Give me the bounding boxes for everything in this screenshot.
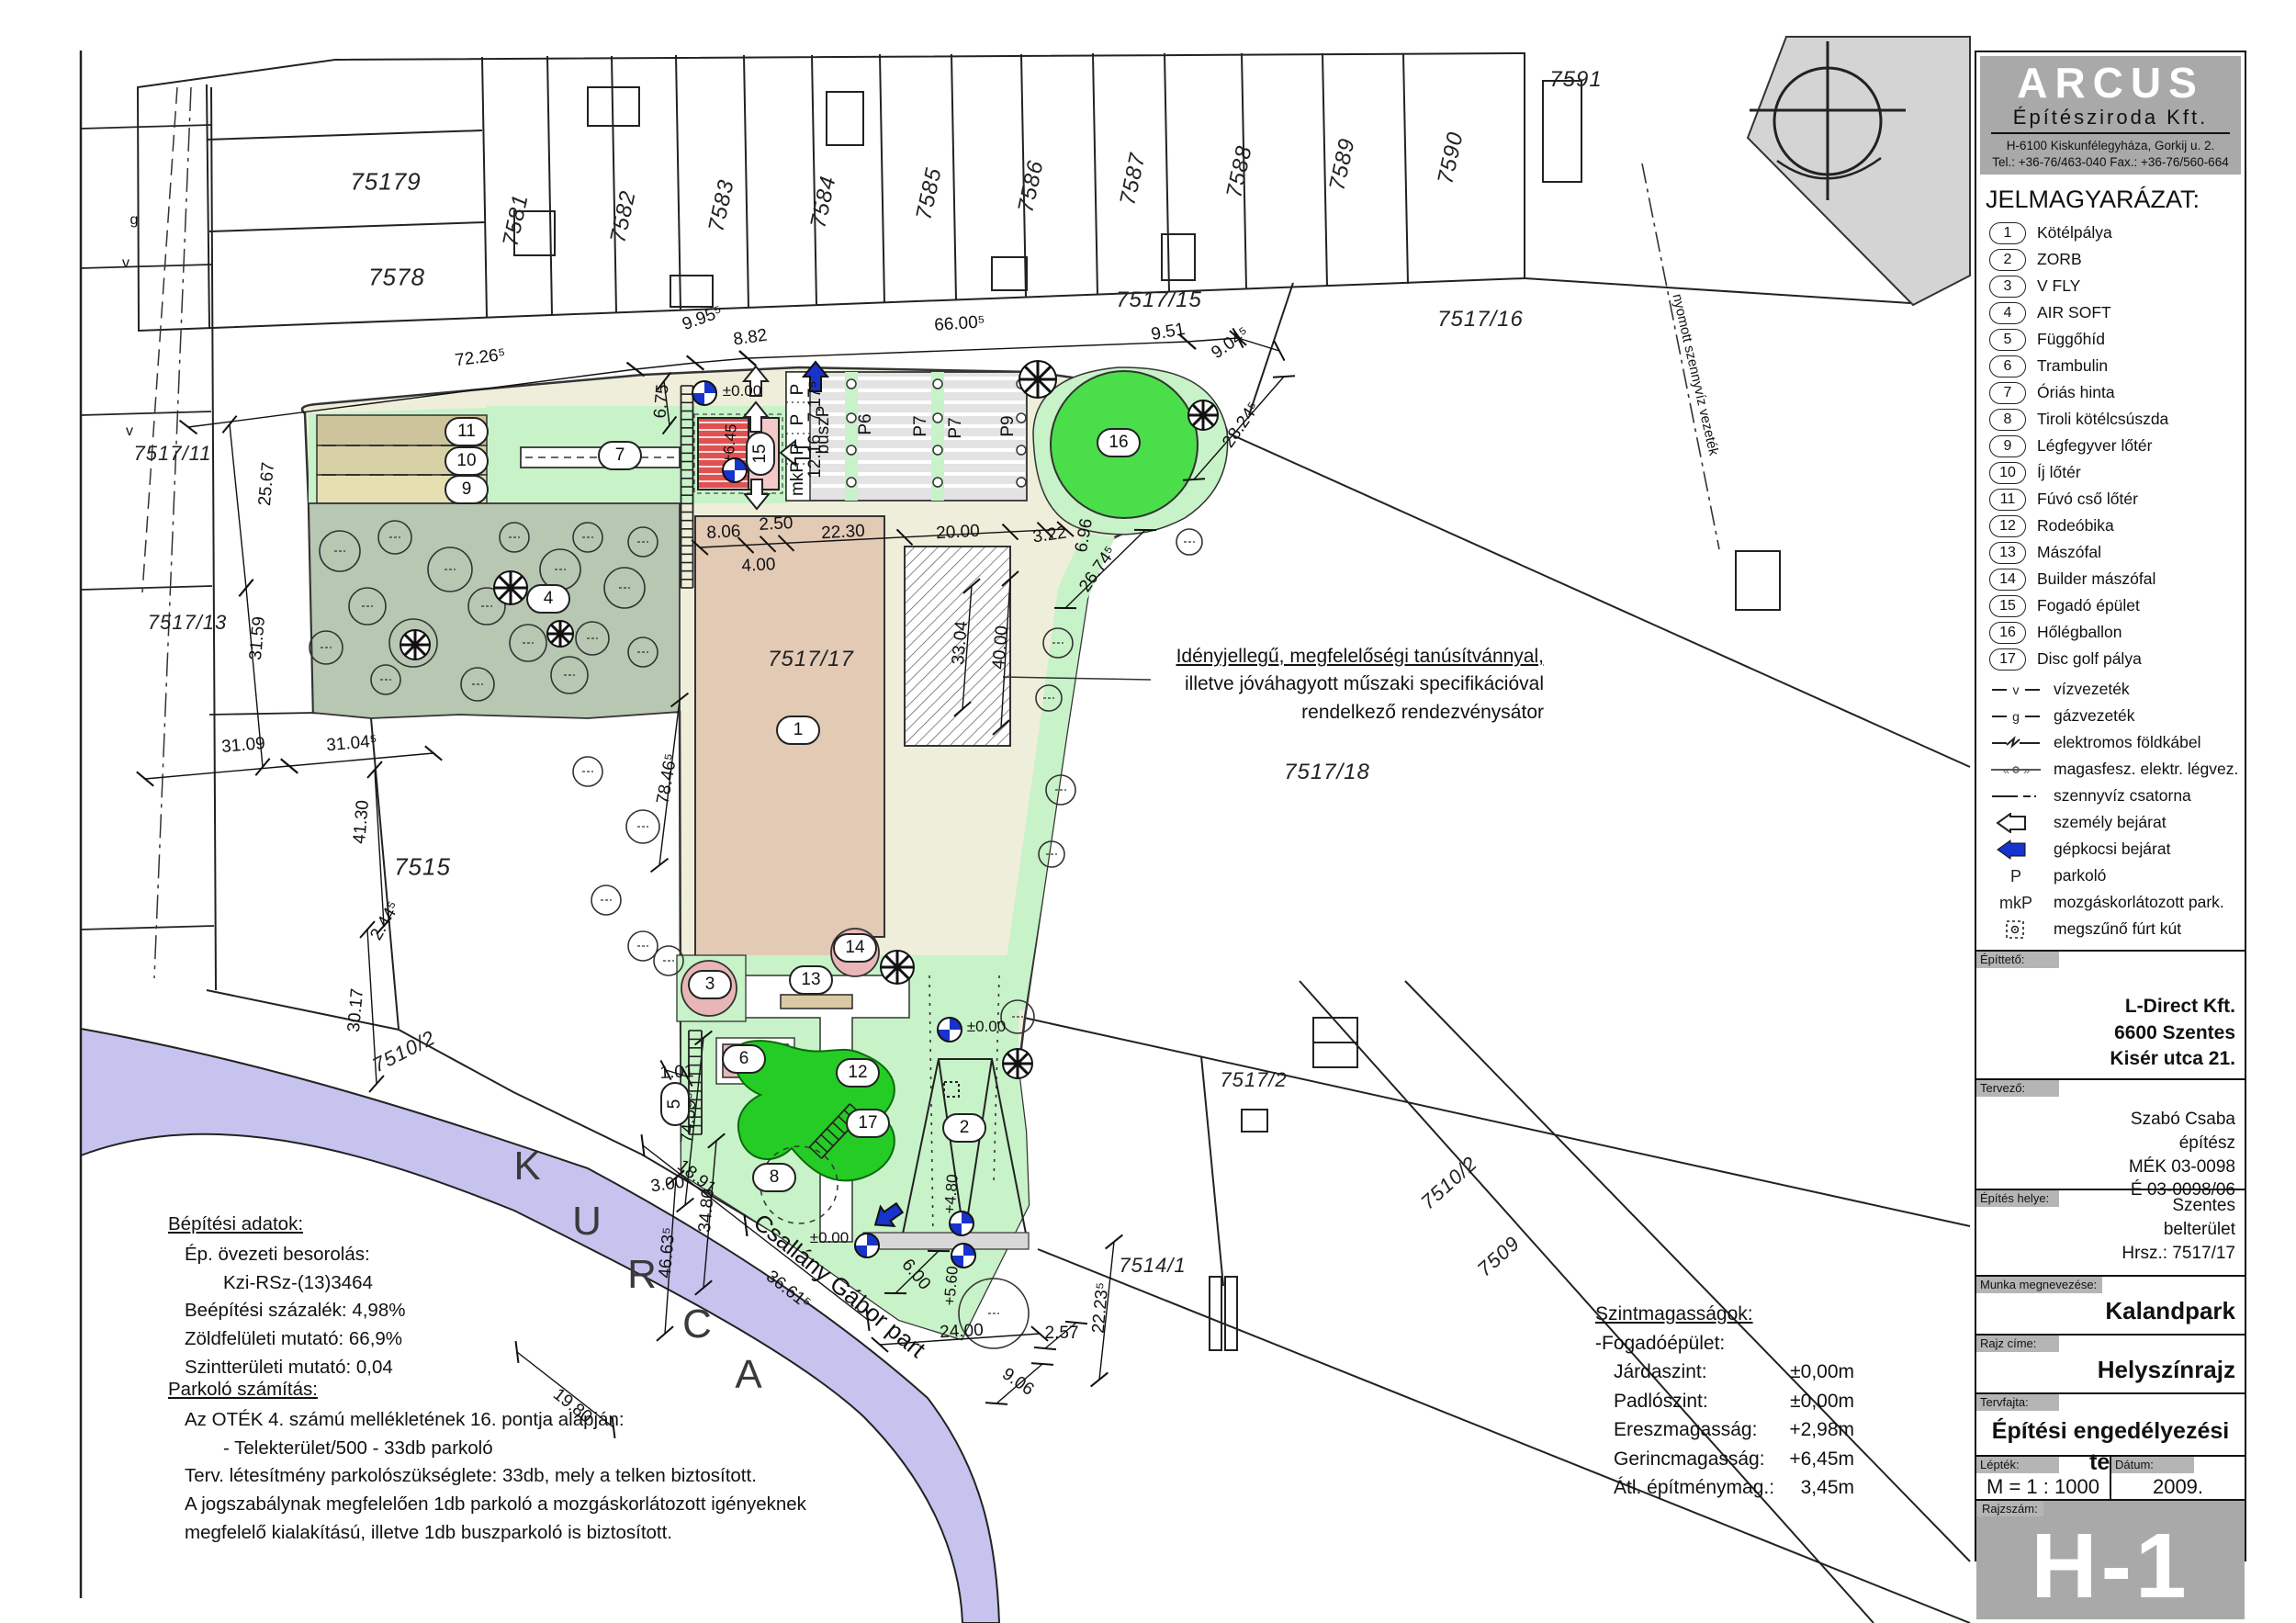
tent-note-line1: Idényjellegű, megfelelőségi tanúsítvánny… <box>1151 643 1544 671</box>
field-label: Tervfajta: <box>1976 1394 2059 1411</box>
legend-symbol-well: megszűnő fúrt kút <box>1976 916 2245 942</box>
letterline-symbol: v <box>1989 680 2043 700</box>
parcel-label: 7514/1 <box>1119 1254 1186 1278</box>
dimension-label: 20.00 <box>936 522 981 544</box>
legend-item-label: Óriás hinta <box>2037 383 2115 402</box>
legend-item-number: 1 <box>1989 222 2026 244</box>
levels-title: Szintmagasságok: <box>1595 1300 1871 1329</box>
legend-item-number: 14 <box>1989 569 2026 591</box>
tent-note: Idényjellegű, megfelelőségi tanúsítvánny… <box>1151 643 1544 727</box>
map-text: v <box>126 423 133 440</box>
field-label: Munka megnevezése: <box>1976 1277 2102 1293</box>
parking-label: P <box>788 444 808 456</box>
river-name-letter: A <box>735 1352 763 1398</box>
legend-item-label: AIR SOFT <box>2037 303 2111 322</box>
hv-symbol: «» <box>1989 760 2043 780</box>
parking-label: P <box>788 414 808 426</box>
legend-item-number: 10 <box>1989 462 2026 484</box>
parking-label: P7 <box>946 417 966 438</box>
parcel-label: 7517/13 <box>148 611 228 635</box>
feature-badge-8: 8 <box>752 1163 796 1192</box>
legend-item: 10 Íj lőtér <box>1976 459 2245 486</box>
building-data-line: Beépítési százalék: 4,98% <box>168 1297 563 1325</box>
legend-symbol-text: P parkoló <box>1976 862 2245 889</box>
legend-item-number: 7 <box>1989 382 2026 404</box>
titleblock-field: Rajz címe: Helyszínrajz <box>1976 1334 2245 1392</box>
svg-text:»: » <box>2023 763 2030 777</box>
building-data-line: Zöldfelületi mutató: 66,9% <box>168 1325 563 1354</box>
titleblock-field: Munka megnevezése: Kalandpark <box>1976 1275 2245 1334</box>
text-symbol: P <box>1989 866 2043 886</box>
parking-calc-line: - Telekterület/500 - 33db parkoló <box>168 1435 995 1463</box>
dimension-label: 2.50 <box>759 513 793 535</box>
legend-item-label: Íj lőtér <box>2037 463 2081 482</box>
legend-item-label: Rodeóbika <box>2037 516 2114 535</box>
company-subtitle: Építésziroda Kft. <box>1991 106 2230 134</box>
legend-item: 9 Légfegyver lőtér <box>1976 433 2245 459</box>
legend-symbol-label: mozgáskorlátozott park. <box>2054 893 2224 912</box>
svg-text:«: « <box>2003 763 2009 777</box>
legend-title: JELMAGYARÁZAT: <box>1976 178 2245 220</box>
company-logo: ARCUS <box>1984 62 2237 104</box>
legend-symbol-letterline: v vízvezeték <box>1976 676 2245 703</box>
title-block-panel: ARCUS Építésziroda Kft. H-6100 Kiskunfél… <box>1975 51 2246 1561</box>
scale-date-row: Lépték: M = 1 : 1000 Dátum: 2009. novemb… <box>1976 1455 2245 1499</box>
building-data-line: Kzi-RSz-(13)3464 <box>168 1269 563 1298</box>
benchmark-marker <box>937 1017 962 1043</box>
feature-badge-5: 5 <box>660 1082 690 1126</box>
legend-item-label: V FLY <box>2037 276 2080 296</box>
legend-symbol-label: szennyvíz csatorna <box>2054 786 2191 806</box>
scale-label: Lépték: <box>1976 1457 2059 1473</box>
parking-label: P7 <box>911 415 931 436</box>
legend-symbol-elec: elektromos földkábel <box>1976 729 2245 756</box>
legend-items: 1 Kötélpálya2 ZORB3 V FLY4 AIR SOFT5 Füg… <box>1976 220 2245 672</box>
river-name-letter: C <box>682 1302 714 1347</box>
elec-symbol <box>1989 733 2043 753</box>
feature-badge-3: 3 <box>688 970 732 999</box>
field-label: Építés helye: <box>1976 1190 2059 1207</box>
legend-item: 12 Rodeóbika <box>1976 513 2245 539</box>
legend-item: 13 Mászófal <box>1976 539 2245 566</box>
legend-item-number: 15 <box>1989 595 2026 617</box>
field-label: Rajz címe: <box>1976 1336 2059 1352</box>
feature-badge-1: 1 <box>776 716 820 745</box>
dimension-label: 1.01 <box>659 1062 694 1084</box>
legend-item-number: 11 <box>1989 489 2026 511</box>
benchmark-marker <box>854 1233 880 1258</box>
dimension-label: 40.00 <box>989 625 1013 670</box>
dimension-label: 2.57 <box>1045 1324 1079 1344</box>
parcel-label: 7517/2 <box>1220 1068 1287 1092</box>
feature-badge-14: 14 <box>833 933 877 963</box>
dimension-label: 6.75 <box>650 384 673 420</box>
feature-badge-11: 11 <box>445 417 489 446</box>
building-data-block: Bépítési adatok: Ép. övezeti besorolás:K… <box>168 1211 563 1382</box>
legend-item-number: 3 <box>1989 276 2026 298</box>
level-row: Járdaszint:±0,00m <box>1595 1358 1854 1387</box>
legend-item-label: Kötélpálya <box>2037 223 2112 242</box>
legend-item-label: Légfegyver lőtér <box>2037 436 2153 456</box>
feature-badge-10: 10 <box>445 446 489 476</box>
benchmark-marker <box>951 1243 976 1268</box>
benchmark-marker <box>722 457 748 483</box>
parking-label: P <box>788 384 808 396</box>
legend-item-number: 9 <box>1989 435 2026 457</box>
dimension-label: 24.00 <box>940 1321 985 1343</box>
level-label: ±0.00 <box>967 1018 1006 1036</box>
legend-item: 11 Fúvó cső lőtér <box>1976 486 2245 513</box>
legend-symbol-label: parkoló <box>2054 866 2106 885</box>
level-label: +4.80 <box>940 1174 962 1215</box>
feature-badge-16: 16 <box>1097 428 1141 457</box>
benchmark-marker <box>692 380 717 406</box>
dimension-label: 33.04 <box>949 620 973 665</box>
legend-symbol-sewer: szennyvíz csatorna <box>1976 783 2245 809</box>
map-text: g <box>130 212 139 229</box>
benchmark-marker <box>949 1211 974 1236</box>
dimension-label: 4.00 <box>741 555 776 577</box>
drawing-sheet: Bépítési adatok: Ép. övezeti besorolás:K… <box>0 0 2296 1623</box>
dimension-label: 8.06 <box>706 522 741 544</box>
level-label: ±0.00 <box>723 382 761 400</box>
legend-item: 7 Óriás hinta <box>1976 379 2245 406</box>
legend-symbol-parrow: személy bejárat <box>1976 809 2245 836</box>
titleblock-field: Építtető: L-Direct Kft.6600 SzentesKisér… <box>1976 950 2245 1078</box>
legend-item-number: 13 <box>1989 542 2026 564</box>
sewer-symbol <box>1989 786 2043 806</box>
feature-badge-12: 12 <box>836 1058 880 1088</box>
parcel-label: 7515 <box>394 853 451 882</box>
main-building-area <box>695 516 884 974</box>
parcel-label: 7578 <box>368 264 425 292</box>
parking-calc-line: megfelelő kialakítású, illetve 1db buszp… <box>168 1519 995 1548</box>
company-phone: Tel.: +36-76/463-040 Fax.: +36-76/560-66… <box>1984 154 2237 171</box>
dimension-label: 25.67 <box>255 461 279 506</box>
level-row: Gerincmagasság:+6,45m <box>1595 1445 1854 1474</box>
legend-symbol-text: mkP mozgáskorlátozott park. <box>1976 889 2245 916</box>
parcel-label: 7517/16 <box>1437 307 1524 332</box>
date-label: Dátum: <box>2111 1457 2194 1473</box>
legend-symbol-label: gépkocsi bejárat <box>2054 840 2170 859</box>
legend-symbol-label: elektromos földkábel <box>2054 733 2201 752</box>
legend-item-number: 16 <box>1989 622 2026 644</box>
legend-item-label: Disc golf pálya <box>2037 649 2142 669</box>
drawing-number: H-1 <box>1976 1514 2245 1619</box>
dimension-label: 22.30 <box>821 522 866 544</box>
parcel-label: 7591 <box>1549 67 1602 93</box>
legend-item-label: Fúvó cső lőtér <box>2037 490 2138 509</box>
legend-symbol-label: vízvezeték <box>2054 680 2130 699</box>
legend-symbol-hv: «» magasfesz. elektr. légvez. <box>1976 756 2245 783</box>
titleblock-field: Tervfajta: Építési engedélyezési terv <box>1976 1392 2245 1455</box>
legend-item-label: Trambulin <box>2037 356 2108 376</box>
legend-item: 1 Kötélpálya <box>1976 220 2245 246</box>
tent-note-line3: rendelkező rendezvénysátor <box>1151 699 1544 727</box>
carrow-symbol <box>1989 840 2043 860</box>
legend-symbol-label: magasfesz. elektr. légvez. <box>2054 760 2238 779</box>
river-name-letter: K <box>513 1144 542 1189</box>
legend-item: 16 Hőlégballon <box>1976 619 2245 646</box>
levels-subtitle: -Fogadóépület: <box>1595 1329 1871 1358</box>
dimension-label: 30.17 <box>344 987 368 1032</box>
legend-item: 8 Tiroli kötélcsúszda <box>1976 406 2245 433</box>
feature-badge-17: 17 <box>846 1109 890 1138</box>
river-name-letter: U <box>572 1199 603 1245</box>
dimension-label: 31.59 <box>246 615 270 660</box>
parking-calc-line: Terv. létesítmény parkolószükséglete: 33… <box>168 1462 995 1491</box>
legend-item-label: Függőhíd <box>2037 330 2105 349</box>
parcel-label: 7517/15 <box>1116 287 1202 313</box>
legend-item-label: ZORB <box>2037 250 2082 269</box>
legend-item-label: Builder mászófal <box>2037 569 2155 589</box>
legend-item-label: Tiroli kötélcsúszda <box>2037 410 2168 429</box>
field-label: Tervező: <box>1976 1080 2059 1097</box>
legend-item-number: 4 <box>1989 302 2026 324</box>
legend-item-number: 6 <box>1989 355 2026 378</box>
company-logo-block: ARCUS Építésziroda Kft. H-6100 Kiskunfél… <box>1980 56 2241 175</box>
legend-item: 3 V FLY <box>1976 273 2245 299</box>
building-data-line: Ép. övezeti besorolás: <box>168 1241 563 1269</box>
tent-note-line2: illetve jóváhagyott műszaki specifikáció… <box>1151 671 1544 698</box>
climbing-wall <box>781 995 852 1009</box>
parking-label: mkP <box>788 461 808 496</box>
feature-badge-4: 4 <box>526 584 570 614</box>
letterline-symbol: g <box>1989 706 2043 727</box>
feature-badge-15: 15 <box>746 432 775 476</box>
well-symbol <box>1989 919 2043 940</box>
legend-symbol-carrow: gépkocsi bejárat <box>1976 836 2245 862</box>
titleblock-field: Építés helye: SzentesbelterületHrsz.: 75… <box>1976 1189 2245 1275</box>
level-label: ±0.00 <box>810 1229 849 1247</box>
legend-item: 2 ZORB <box>1976 246 2245 273</box>
map-text: v <box>122 255 129 272</box>
level-label: +5.60 <box>940 1266 962 1307</box>
parcel-label: 7517/17 <box>768 647 854 672</box>
company-address: H-6100 Kiskunfélegyháza, Gorkij u. 2. <box>1984 138 2237 154</box>
field-label: Építtető: <box>1976 952 2059 968</box>
legend-item-number: 12 <box>1989 515 2026 537</box>
parking-label: buszP <box>814 406 834 455</box>
feature-badge-9: 9 <box>445 475 489 504</box>
parking-calc-line: A jogszabálynak megfelelően 1db parkoló … <box>168 1491 995 1519</box>
legend-item-number: 2 <box>1989 249 2026 271</box>
svg-text:P: P <box>2010 867 2021 885</box>
svg-text:g: g <box>2012 709 2020 724</box>
parking-label: P9 <box>998 415 1019 436</box>
building-data-title: Bépítési adatok: <box>168 1211 563 1239</box>
parcel-label: 75179 <box>350 168 421 197</box>
legend-item: 17 Disc golf pálya <box>1976 646 2245 672</box>
svg-text:v: v <box>2013 682 2020 697</box>
legend-symbol-letterline: g gázvezeték <box>1976 703 2245 729</box>
feature-badge-2: 2 <box>942 1113 986 1143</box>
titleblock-field: Tervező: Szabó CsabaépítészMÉK 03-0098É … <box>1976 1078 2245 1189</box>
legend-item-label: Fogadó épület <box>2037 596 2140 615</box>
legend-item: 15 Fogadó épület <box>1976 592 2245 619</box>
level-row: Padlószint:±0,00m <box>1595 1387 1854 1416</box>
levels-block: Szintmagasságok: -Fogadóépület: Járdaszi… <box>1595 1300 1871 1503</box>
svg-text:mkP: mkP <box>1999 894 2032 912</box>
level-row: Átl. építménymag.:3,45m <box>1595 1473 1854 1503</box>
legend-symbols: v vízvezetékg gázvezeték elektromos föld… <box>1976 676 2245 942</box>
legend-item-label: Mászófal <box>2037 543 2101 562</box>
legend-item-number: 8 <box>1989 409 2026 431</box>
legend-symbol-label: személy bejárat <box>2054 813 2167 832</box>
dimension-label: 41.30 <box>350 799 374 844</box>
river-name-letter: R <box>627 1252 658 1298</box>
parrow-symbol <box>1989 813 2043 833</box>
legend-symbol-label: gázvezeték <box>2054 706 2135 726</box>
legend-item: 14 Builder mászófal <box>1976 566 2245 592</box>
dimension-label: 66.00⁵ <box>934 312 986 336</box>
level-row: Ereszmagasság:+2,98m <box>1595 1415 1854 1445</box>
feature-badge-6: 6 <box>722 1044 766 1074</box>
field-value: L-Direct Kft.6600 SzentesKisér utca 21. <box>1976 952 2245 1077</box>
legend-item-number: 17 <box>1989 648 2026 671</box>
parcel-label: 7517/18 <box>1284 760 1370 785</box>
dimension-label: 31.09 <box>220 734 265 758</box>
feature-badge-7: 7 <box>598 441 642 470</box>
legend-item: 6 Trambulin <box>1976 353 2245 379</box>
drawing-number-block: Rajzszám: H-1 <box>1976 1499 2245 1619</box>
feature-badge-13: 13 <box>789 965 833 995</box>
legend-symbol-label: megszűnő fúrt kút <box>2054 919 2181 939</box>
legend-item: 5 Függőhíd <box>1976 326 2245 353</box>
text-symbol: mkP <box>1989 893 2043 913</box>
legend-item: 4 AIR SOFT <box>1976 299 2245 326</box>
legend-item-number: 5 <box>1989 329 2026 351</box>
parking-label: P6 <box>856 413 876 434</box>
drawing-number-label: Rajzszám: <box>1976 1501 2043 1516</box>
parcel-label: 7517/11 <box>134 442 212 466</box>
legend-item-label: Hőlégballon <box>2037 623 2122 642</box>
